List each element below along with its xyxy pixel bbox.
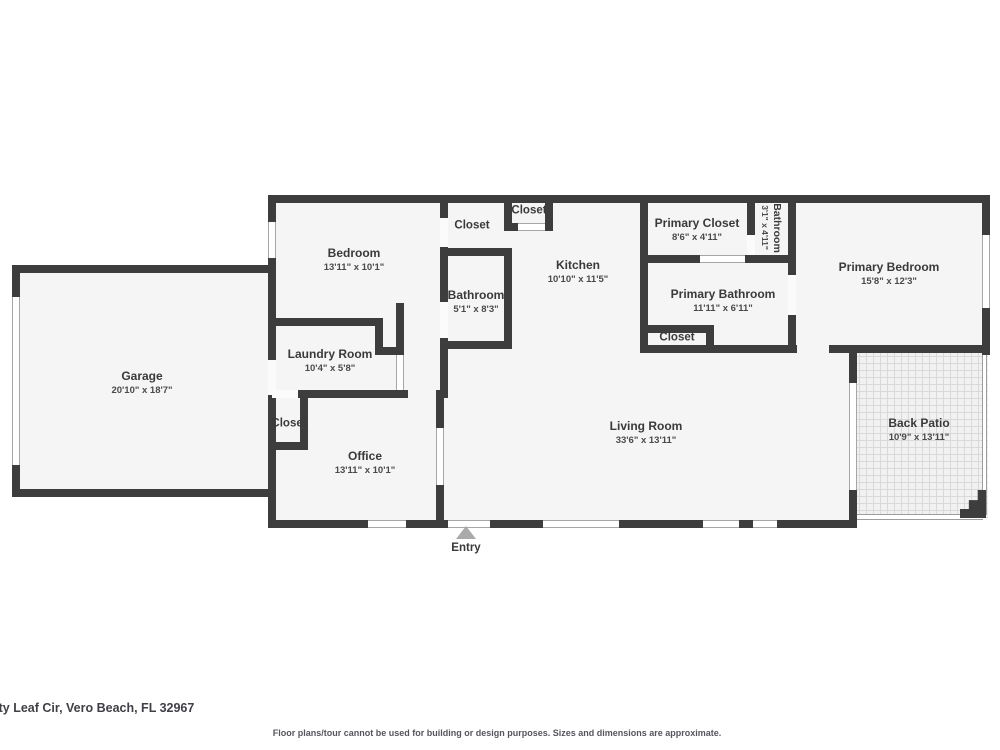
wall — [268, 395, 276, 528]
wall — [504, 248, 512, 349]
wall — [268, 195, 990, 203]
door-opening — [440, 218, 448, 247]
wall — [298, 390, 408, 398]
room-label-hall-bathroom: Bathroom 3'1" x 4'11" — [759, 203, 783, 253]
entry-arrow-icon — [456, 526, 476, 539]
room-label-office: Office 13'11" x 10'1" — [335, 449, 396, 477]
wall — [640, 345, 797, 353]
wall — [12, 265, 20, 297]
wall — [268, 195, 276, 360]
room-label-primary-closet: Primary Closet 8'6" x 4'11" — [655, 216, 740, 244]
room-label-bedroom: Bedroom 13'11" x 10'1" — [324, 246, 385, 274]
wall — [849, 490, 857, 528]
house-floor-bottom — [268, 355, 857, 528]
wall — [268, 318, 383, 326]
sliding-door — [849, 383, 857, 490]
room-label-laundry: Laundry Room 10'4" x 5'8" — [288, 347, 373, 375]
window — [268, 222, 276, 258]
door-opening — [747, 235, 755, 255]
door-opening — [396, 355, 404, 390]
address-text: uty Leaf Cir, Vero Beach, FL 32967 — [0, 701, 194, 715]
wall — [12, 465, 20, 497]
wall — [375, 318, 383, 355]
wall — [745, 255, 788, 263]
wall — [440, 341, 512, 349]
room-label-bedroom-closet: Closet — [454, 219, 489, 234]
window — [982, 235, 990, 308]
wall — [12, 265, 268, 273]
door-opening — [436, 428, 444, 485]
window — [368, 520, 406, 528]
room-label-top-closet: Closet — [511, 204, 546, 219]
room-label-living-room: Living Room 33'6" x 13'11" — [610, 419, 683, 447]
wall — [747, 195, 755, 235]
wall — [788, 315, 796, 353]
room-label-office-closet: Closet — [271, 417, 306, 432]
wall — [396, 303, 404, 355]
wall — [788, 195, 796, 275]
room-label-primary-bathroom: Primary Bathroom 11'11" x 6'11" — [671, 287, 776, 315]
floor-plan-page: Garage 20'10" x 18'7" Bedroom 13'11" x 1… — [0, 0, 1000, 750]
entry-label: Entry — [451, 542, 480, 554]
floor-plan: Garage 20'10" x 18'7" Bedroom 13'11" x 1… — [0, 0, 1000, 750]
wall — [706, 325, 714, 353]
window — [543, 520, 619, 528]
door-opening — [272, 390, 298, 398]
wall — [640, 255, 700, 263]
room-label-back-patio: Back Patio 10'9" x 13'11" — [888, 416, 949, 444]
door-opening — [518, 223, 545, 231]
door-opening — [700, 255, 745, 263]
disclaimer-text: Floor plans/tour cannot be used for buil… — [273, 728, 722, 738]
wall — [12, 489, 268, 497]
room-label-garage: Garage 20'10" x 18'7" — [111, 369, 172, 397]
room-label-primary-bedroom: Primary Bedroom 15'8" x 12'3" — [839, 260, 940, 288]
window — [703, 520, 739, 528]
garage-door — [12, 297, 20, 465]
room-label-bathroom: Bathroom 5'1" x 8'3" — [448, 288, 505, 316]
wall — [268, 442, 308, 450]
wall — [829, 345, 990, 353]
wall — [440, 248, 512, 256]
wall — [849, 353, 857, 383]
room-label-primary-bath-closet: Closet — [659, 331, 694, 346]
window — [753, 520, 777, 528]
room-label-kitchen: Kitchen 10'10" x 11'5" — [548, 258, 609, 286]
wall — [440, 195, 448, 218]
door-opening — [788, 275, 796, 315]
